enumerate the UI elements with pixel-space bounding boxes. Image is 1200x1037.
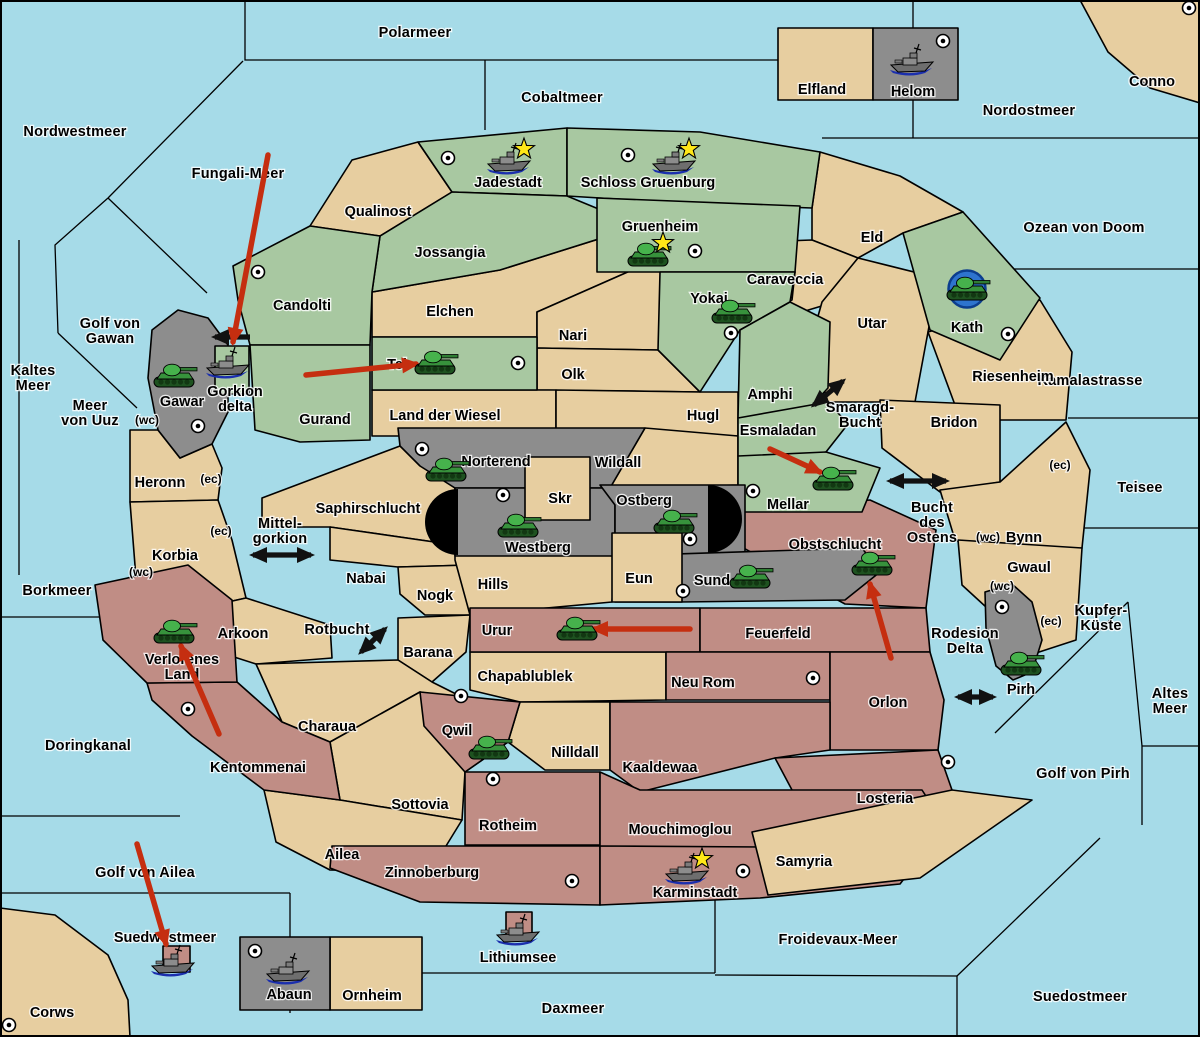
sea-label-froidevaux_meer: Froidevaux-Meer <box>778 932 897 948</box>
sea-label-daxmeer: Daxmeer <box>542 1001 605 1017</box>
region-label-sund: Sund <box>694 573 730 589</box>
sea-label-mittel_gorkion: Mittel-gorkion <box>253 516 308 547</box>
region-gruenheim[interactable] <box>597 198 800 272</box>
region-label-jossangia: Jossangia <box>415 245 487 261</box>
supply-center-qwil <box>455 690 468 703</box>
region-label-saphirschlucht: Saphirschlucht <box>316 501 421 517</box>
supply-center-ostberg <box>684 533 697 546</box>
sea-label-kaltes_meer: KaltesMeer <box>11 363 56 394</box>
region-label-zinnoberburg: Zinnoberburg <box>385 865 479 881</box>
coast-mark-5: (wc) <box>976 530 1000 544</box>
supply-center-tel <box>512 357 525 370</box>
sea-label-nordwestmeer: Nordwestmeer <box>23 124 126 140</box>
sea-label-kupfer_kueste: Kupfer-Küste <box>1075 603 1128 634</box>
region-label-westberg: Westberg <box>505 540 571 556</box>
region-label-candolti: Candolti <box>273 298 331 314</box>
region-label-jadestadt: Jadestadt <box>474 175 542 191</box>
region-label-ailea: Ailea <box>325 847 361 863</box>
region-label-losteria: Losteria <box>857 791 914 807</box>
coast-mark-4: (ec) <box>1049 458 1070 472</box>
region-label-mellar: Mellar <box>767 497 809 513</box>
supply-center-pirh <box>996 601 1009 614</box>
region-mellar[interactable] <box>738 452 880 512</box>
region-label-pirh: Pirh <box>1007 682 1035 698</box>
region-label-riesenheim: Riesenheim <box>972 369 1053 385</box>
coast-mark-0: (wc) <box>135 413 159 427</box>
region-label-eun: Eun <box>625 571 652 587</box>
supply-center-yokai <box>725 327 738 340</box>
supply-center-corws <box>3 1019 16 1032</box>
region-label-land_der_wiesel: Land der Wiesel <box>389 408 500 424</box>
region-label-bridon: Bridon <box>931 415 978 431</box>
region-label-lithiumsee_box: Lithiumsee <box>480 950 557 966</box>
sea-label-teisee: Teisee <box>1117 480 1162 496</box>
region-eun[interactable] <box>612 533 682 602</box>
game-map: PolarmeerNordwestmeerFungali-MeerCobaltm… <box>0 0 1200 1037</box>
region-label-utar: Utar <box>857 316 886 332</box>
supply-center-helom <box>937 35 950 48</box>
region-label-gruenheim: Gruenheim <box>622 219 699 235</box>
supply-center-losteria <box>942 756 955 769</box>
region-label-norterend: Norterend <box>461 454 530 470</box>
region-label-corws: Corws <box>30 1005 74 1021</box>
region-label-heronn: Heronn <box>135 475 186 491</box>
region-label-urur: Urur <box>482 623 513 639</box>
sea-label-fungali_meer: Fungali-Meer <box>192 166 285 182</box>
region-feuerfeld[interactable] <box>700 608 930 652</box>
sea-label-rotbucht: Rotbucht <box>304 622 369 638</box>
supply-center-candolti <box>252 266 265 279</box>
region-label-kentommenai: Kentommenai <box>210 760 306 776</box>
region-label-orlon: Orlon <box>869 695 908 711</box>
region-label-schloss_gruenburg: Schloss Gruenburg <box>581 175 716 191</box>
region-label-mouchimoglou: Mouchimoglou <box>628 822 731 838</box>
supply-center-karminstadt <box>737 865 750 878</box>
supply-center-kath <box>1002 328 1015 341</box>
region-label-barana: Barana <box>403 645 453 661</box>
region-label-olk: Olk <box>561 367 585 383</box>
region-label-conno: Conno <box>1129 74 1175 90</box>
region-label-elchen: Elchen <box>426 304 474 320</box>
region-label-esmaladan: Esmaladan <box>740 423 817 439</box>
supply-center-gruenheim <box>689 245 702 258</box>
region-label-hills: Hills <box>478 577 509 593</box>
region-label-ostberg: Ostberg <box>616 493 672 509</box>
region-label-kaaldewaa: Kaaldewaa <box>623 760 699 776</box>
map-canvas: PolarmeerNordwestmeerFungali-MeerCobaltm… <box>0 0 1200 1037</box>
region-label-charaua: Charaua <box>298 719 357 735</box>
region-label-rotheim: Rotheim <box>479 818 537 834</box>
region-label-kath: Kath <box>951 320 983 336</box>
region-label-amphi: Amphi <box>747 387 792 403</box>
region-label-nabai: Nabai <box>346 571 386 587</box>
region-label-nari: Nari <box>559 328 587 344</box>
region-label-ornheim: Ornheim <box>342 988 402 1004</box>
region-label-arkoon: Arkoon <box>218 626 269 642</box>
supply-center-verlorenes_land <box>182 703 195 716</box>
coast-mark-1: (ec) <box>200 472 221 486</box>
region-label-sottovia: Sottovia <box>391 797 449 813</box>
region-label-qwil: Qwil <box>442 723 473 739</box>
region-label-hugl: Hugl <box>687 408 719 424</box>
region-label-samyria: Samyria <box>776 854 833 870</box>
supply-center-norterend <box>416 443 429 456</box>
supply-center-jadestadt <box>442 152 455 165</box>
sea-label-doringkanal: Doringkanal <box>45 738 131 754</box>
region-label-elfland: Elfland <box>798 82 846 98</box>
region-label-nogk: Nogk <box>417 588 454 604</box>
sea-label-nordostmeer: Nordostmeer <box>983 103 1076 119</box>
region-label-skr: Skr <box>548 491 572 507</box>
region-label-korbia: Korbia <box>152 548 199 564</box>
supply-center-abaun <box>249 945 262 958</box>
supply-center-conno <box>1183 2 1196 15</box>
supply-center-schloss_gruenburg <box>622 149 635 162</box>
region-label-eld: Eld <box>861 230 884 246</box>
region-label-gurand: Gurand <box>299 412 351 428</box>
region-label-gawar: Gawar <box>160 394 205 410</box>
region-rotheim[interactable] <box>465 772 600 845</box>
supply-center-neu_rom <box>807 672 820 685</box>
sea-label-golf_von_pirh: Golf von Pirh <box>1036 766 1130 782</box>
region-label-nilldall: Nilldall <box>551 745 599 761</box>
supply-center-gawar <box>192 420 205 433</box>
coast-mark-6: (wc) <box>990 579 1014 593</box>
sea-label-cobaltmeer: Cobaltmeer <box>521 90 603 106</box>
coast-mark-2: (ec) <box>210 524 231 538</box>
supply-center-rotheim <box>487 773 500 786</box>
supply-center-zinnoberburg <box>566 875 579 888</box>
region-label-abaun: Abaun <box>266 987 311 1003</box>
region-label-bynn: Bynn <box>1006 530 1042 546</box>
supply-center-westberg <box>497 489 510 502</box>
region-label-wildall: Wildall <box>595 455 642 471</box>
region-label-obstschlucht: Obstschlucht <box>789 537 882 553</box>
sea-label-polarmeer: Polarmeer <box>379 25 452 41</box>
region-label-feuerfeld: Feuerfeld <box>745 626 810 642</box>
region-label-caraveccia: Caraveccia <box>747 272 825 288</box>
sea-label-altes_meer: AltesMeer <box>1152 686 1188 717</box>
sea-label-ozean_von_doom: Ozean von Doom <box>1023 220 1144 236</box>
region-label-helom: Helom <box>891 84 935 100</box>
region-label-qualinost: Qualinost <box>345 204 412 220</box>
region-label-neu_rom: Neu Rom <box>671 675 735 691</box>
region-label-chapablublek: Chapablublek <box>477 669 573 685</box>
sea-label-suedostmeer: Suedostmeer <box>1033 989 1127 1005</box>
sea-label-borkmeer: Borkmeer <box>22 583 91 599</box>
region-label-gwaul: Gwaul <box>1007 560 1051 576</box>
region-label-karminstadt: Karminstadt <box>653 885 738 901</box>
supply-center-sund <box>677 585 690 598</box>
supply-center-mellar <box>747 485 760 498</box>
region-skr[interactable] <box>525 457 590 520</box>
sea-label-golf_von_gawan: Golf vonGawan <box>80 316 140 347</box>
coast-mark-7: (ec) <box>1040 614 1061 628</box>
coast-mark-3: (wc) <box>129 565 153 579</box>
